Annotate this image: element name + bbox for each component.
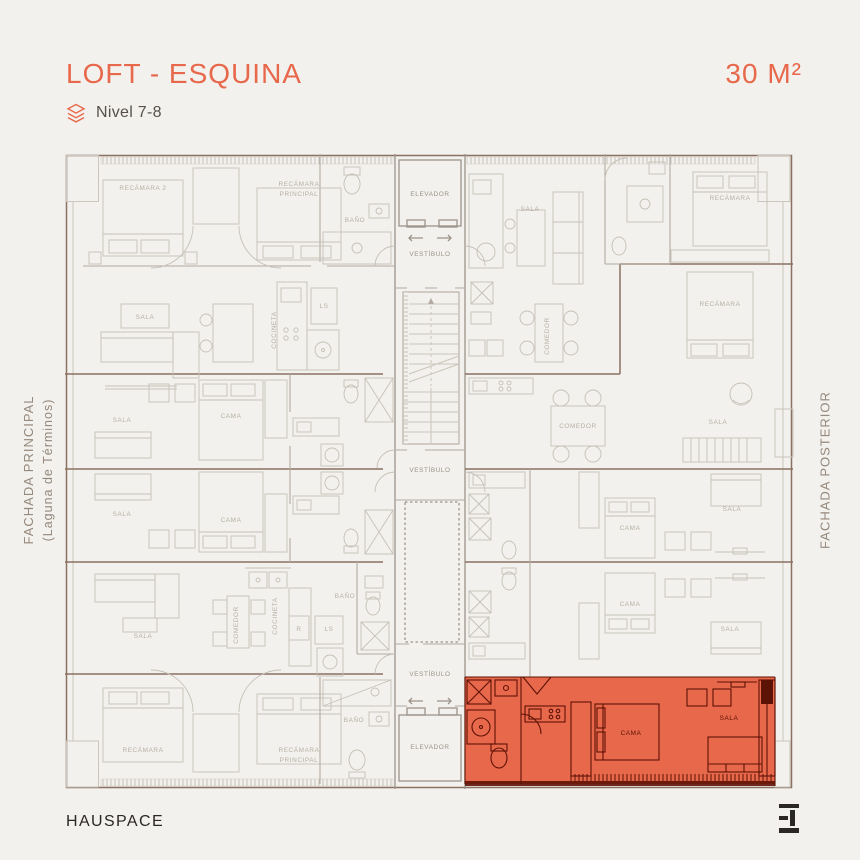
room-label: PRINCIPAL [280, 757, 319, 764]
room-label: ELEVADOR [410, 191, 449, 198]
room-label: SALA [723, 506, 742, 513]
room-label: VESTÍBULO [409, 669, 450, 678]
facade-principal-line1: FACHADA PRINCIPAL [19, 396, 39, 545]
room-label: RECÁMARA [278, 745, 319, 754]
room-label: LS [319, 303, 328, 310]
room-label: BAÑO [344, 715, 365, 724]
room-label: CAMA [620, 525, 641, 532]
room-label: ELEVADOR [410, 744, 449, 751]
unit-left-loft-a [95, 374, 395, 469]
room-label: VESTÍBULO [409, 465, 450, 474]
layers-icon [66, 103, 86, 123]
room-label: RECÁMARA [709, 193, 750, 202]
room-label: RECÁMARA 2 [119, 183, 166, 192]
shaft [405, 502, 459, 642]
room-label: COMEDOR [559, 423, 597, 430]
facade-principal-line2: (Laguna de Términos) [38, 396, 57, 545]
room-label: CAMA [621, 730, 642, 737]
room-label: RECÁMARA [122, 745, 163, 754]
unit-left-loft-b [95, 469, 393, 562]
room-label: SALA [134, 633, 153, 640]
room-label: COCINETA [271, 311, 278, 348]
room-label: SALA [113, 511, 132, 518]
level-label: Nivel 7-8 [96, 104, 162, 122]
unit-top-right-apartment [469, 154, 769, 362]
page: LOFT - ESQUINA 30 M² Nivel 7-8 FACHADA P… [0, 0, 860, 860]
room-label: R [296, 626, 301, 633]
room-label: COMEDOR [544, 317, 551, 355]
room-label: PRINCIPAL [280, 191, 319, 198]
unit-right-recamara [687, 272, 753, 358]
room-label: SALA [721, 626, 740, 633]
room-label: BAÑO [335, 591, 356, 600]
stairs [403, 292, 459, 444]
room-label: LS [324, 626, 333, 633]
room-label: SALA [113, 417, 132, 424]
room-label: RECÁMARA [699, 299, 740, 308]
facade-posterior-line: FACHADA POSTERIOR [815, 391, 835, 549]
room-label: SALA [136, 314, 155, 321]
room-label: CAMA [221, 517, 242, 524]
room-label: RECÁMARA [278, 179, 319, 188]
page-title: LOFT - ESQUINA [66, 58, 302, 90]
room-label: SALA [709, 419, 728, 426]
brand-name: HAUSPACE [66, 813, 164, 831]
room-label: CAMA [620, 601, 641, 608]
room-label: COCINETA [272, 597, 279, 634]
unit-right-loft-2 [469, 562, 765, 677]
plan-labels: ELEVADORVESTÍBULOVESTÍBULOVESTÍBULOELEVA… [113, 179, 751, 764]
hauspace-h-logo [777, 801, 803, 835]
facade-posterior-label: FACHADA POSTERIOR [815, 391, 835, 549]
room-label: SALA [720, 715, 739, 722]
room-label: SALA [521, 206, 540, 213]
facade-principal-label: FACHADA PRINCIPAL (Laguna de Términos) [19, 396, 57, 545]
floor-plan: ELEVADORVESTÍBULOVESTÍBULOVESTÍBULOELEVA… [65, 154, 795, 791]
room-label: VESTÍBULO [409, 249, 450, 258]
level-row: Nivel 7-8 [66, 103, 162, 123]
room-label: COMEDOR [233, 606, 240, 644]
right-unit-boundaries [465, 264, 793, 562]
unit-right-loft-1 [469, 469, 765, 562]
unit-area: 30 M² [725, 58, 802, 90]
room-label: CAMA [221, 413, 242, 420]
room-label: BAÑO [345, 215, 366, 224]
